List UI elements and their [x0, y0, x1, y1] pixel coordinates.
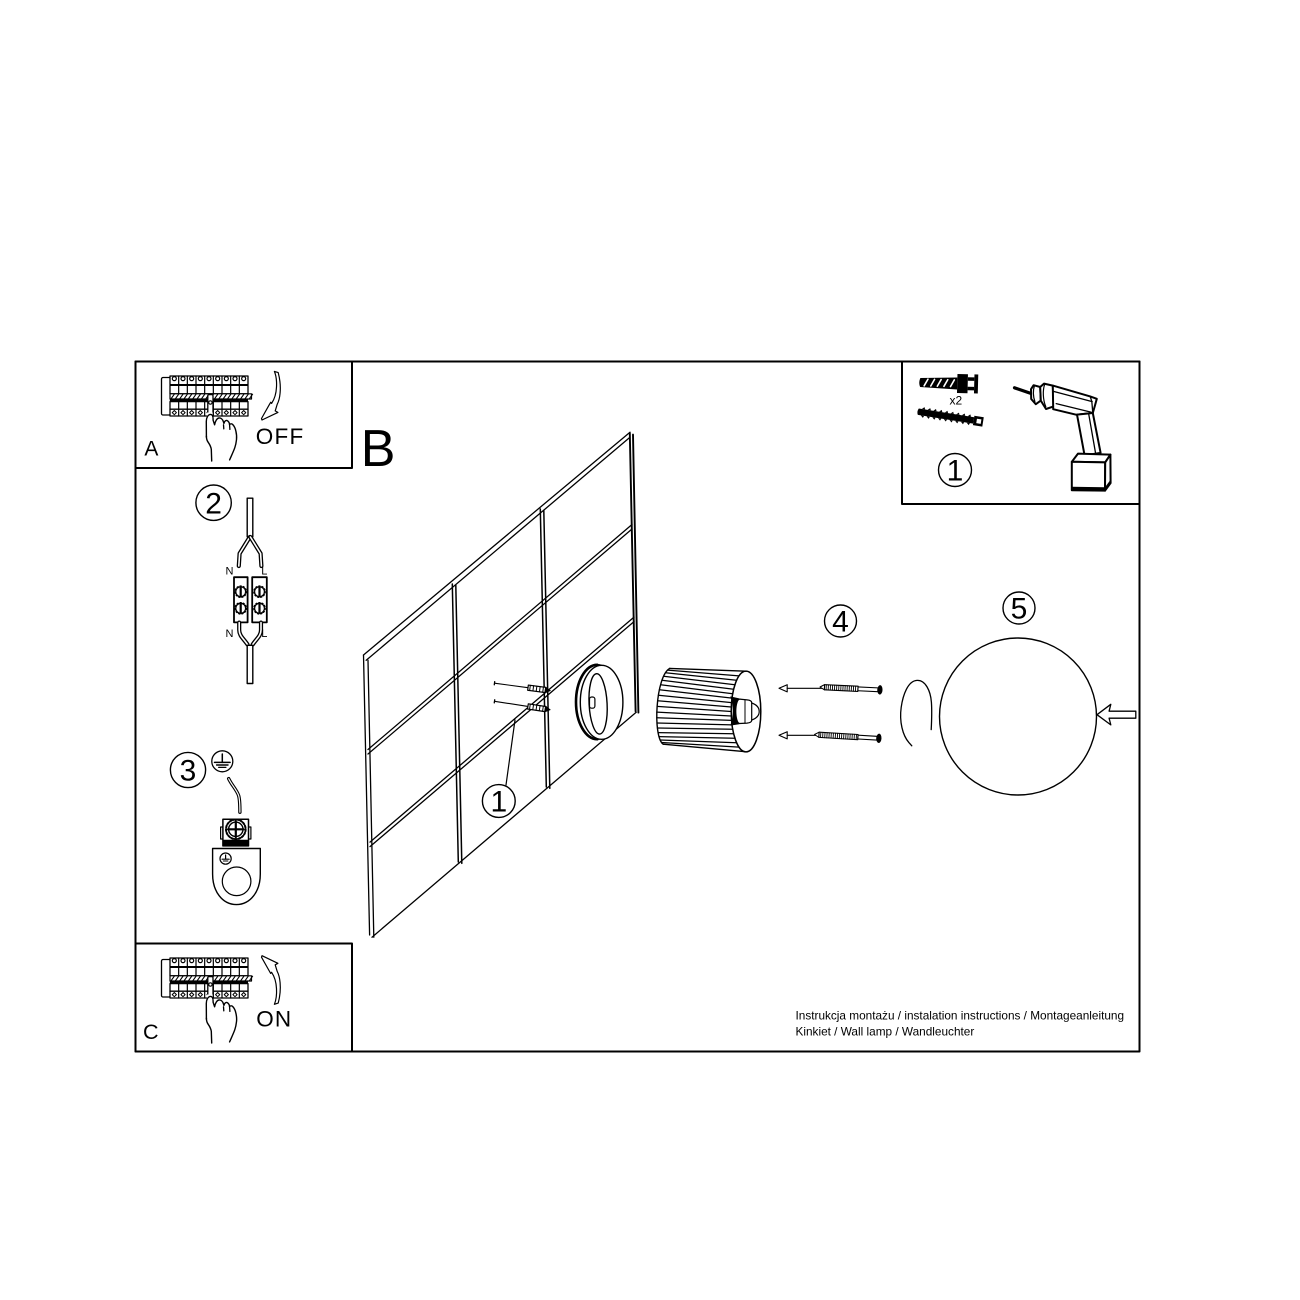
- svg-text:C: C: [143, 1020, 159, 1044]
- svg-text:N: N: [226, 628, 234, 640]
- svg-text:1: 1: [947, 455, 964, 488]
- svg-text:N: N: [226, 565, 234, 577]
- svg-text:x2: x2: [950, 394, 963, 408]
- svg-text:B: B: [361, 420, 396, 478]
- svg-text:5: 5: [1011, 593, 1028, 626]
- svg-text:A: A: [144, 438, 158, 461]
- svg-text:L: L: [261, 565, 267, 577]
- svg-text:Kinkiet / Wall lamp / Wandleuc: Kinkiet / Wall lamp / Wandleuchter: [796, 1025, 975, 1039]
- svg-text:OFF: OFF: [256, 424, 305, 449]
- svg-text:ON: ON: [256, 1007, 292, 1032]
- svg-text:2: 2: [205, 487, 222, 520]
- svg-text:1: 1: [490, 786, 507, 819]
- svg-text:Instrukcja montażu / instalati: Instrukcja montażu / instalation instruc…: [796, 1008, 1125, 1022]
- svg-text:3: 3: [180, 755, 197, 788]
- svg-text:4: 4: [832, 606, 849, 639]
